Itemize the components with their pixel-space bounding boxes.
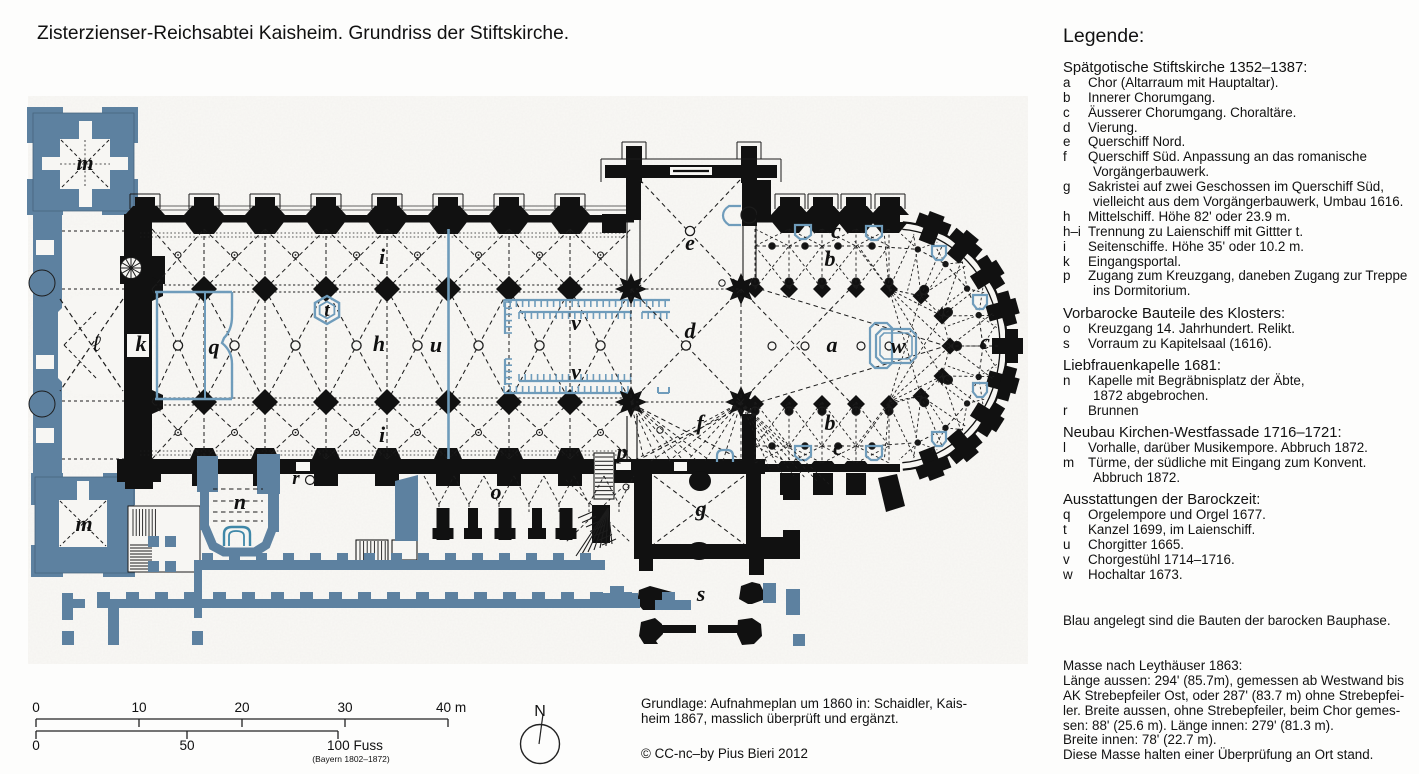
svg-text:m: m bbox=[76, 150, 93, 175]
svg-text:(Bayern 1802–1872): (Bayern 1802–1872) bbox=[312, 754, 390, 764]
svg-text:100 Fuss: 100 Fuss bbox=[327, 738, 383, 753]
svg-text:10: 10 bbox=[131, 700, 147, 715]
svg-text:0: 0 bbox=[32, 738, 40, 753]
svg-text:o: o bbox=[491, 479, 502, 504]
svg-text:a: a bbox=[827, 332, 838, 357]
svg-text:v: v bbox=[571, 359, 581, 384]
svg-text:c: c bbox=[980, 329, 990, 354]
svg-text:r: r bbox=[292, 468, 300, 489]
svg-text:n: n bbox=[234, 489, 246, 514]
svg-text:40 m: 40 m bbox=[436, 700, 466, 715]
svg-text:30: 30 bbox=[337, 700, 353, 715]
svg-text:c: c bbox=[833, 435, 843, 460]
svg-text:v: v bbox=[571, 310, 581, 335]
svg-text:m: m bbox=[75, 511, 92, 536]
svg-text:q: q bbox=[209, 334, 220, 359]
svg-text:e: e bbox=[685, 230, 695, 255]
svg-text:b: b bbox=[825, 246, 836, 271]
svg-text:20: 20 bbox=[234, 700, 250, 715]
svg-text:t: t bbox=[324, 300, 330, 321]
svg-text:ℓ: ℓ bbox=[92, 331, 101, 356]
svg-text:u: u bbox=[430, 332, 442, 357]
svg-text:g: g bbox=[695, 496, 707, 521]
svg-text:p: p bbox=[615, 439, 628, 464]
svg-text:b: b bbox=[825, 410, 836, 435]
svg-text:c: c bbox=[831, 218, 841, 243]
svg-text:w: w bbox=[891, 333, 906, 358]
svg-text:50: 50 bbox=[179, 738, 195, 753]
svg-text:i: i bbox=[379, 422, 386, 447]
svg-text:h: h bbox=[373, 331, 385, 356]
svg-text:k: k bbox=[136, 331, 147, 356]
svg-text:i: i bbox=[379, 244, 386, 269]
svg-text:s: s bbox=[696, 581, 706, 606]
svg-text:0: 0 bbox=[32, 700, 40, 715]
svg-text:N: N bbox=[534, 703, 546, 720]
svg-text:d: d bbox=[685, 318, 697, 343]
